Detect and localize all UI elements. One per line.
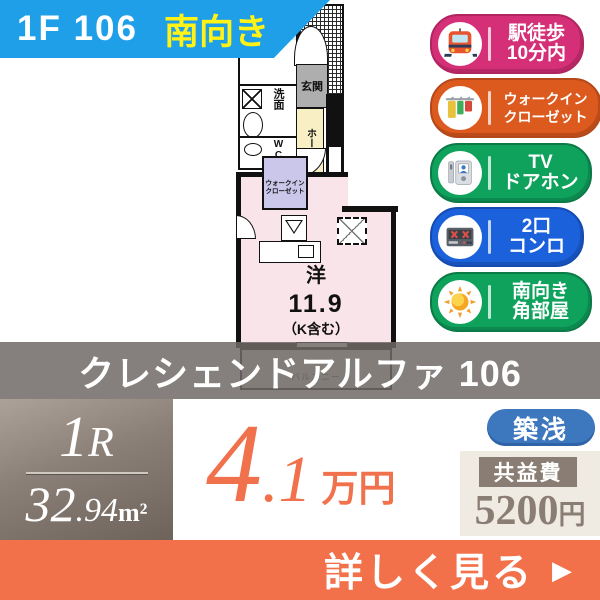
listing-card[interactable]: 浴室 洗面 WC 玄関 ホール 洋 11.9	[0, 0, 600, 600]
area-dec: .94	[76, 492, 119, 529]
room-type-label: 洋	[241, 263, 391, 289]
room-note-label: （K含む）	[241, 319, 391, 339]
layout-value: 1R	[0, 403, 173, 470]
age-badge-label: 築浅	[513, 410, 569, 446]
badge-line1: 南向き	[497, 282, 584, 302]
badge-text: TV ドアホン	[491, 153, 590, 193]
washer-space-icon	[242, 89, 262, 109]
wall-divider	[240, 84, 296, 86]
stove-icon	[438, 215, 482, 259]
badge-line2: 角部屋	[497, 302, 584, 322]
fee-value: 5200円	[460, 487, 600, 535]
fee-amount: 5200	[475, 488, 559, 534]
toilet-icon	[244, 143, 262, 156]
layout-number: 1	[59, 404, 88, 469]
badge-walkin-closet: ウォークイン クローゼット	[430, 78, 600, 138]
badge-text: 南向き 角部屋	[491, 282, 590, 322]
badge-text: ウォークイン クローゼット	[491, 90, 600, 126]
floorplan: 浴室 洗面 WC 玄関 ホール 洋 11.9	[226, 0, 406, 398]
rent-price: 4.1万円	[206, 399, 396, 531]
fee-label: 共益費	[479, 457, 577, 487]
details-button[interactable]: 詳しく見る ▶	[0, 540, 600, 600]
train-icon	[438, 22, 482, 66]
badge-line1: 駅徒歩	[497, 24, 576, 44]
entrance-label: 玄関	[301, 78, 323, 94]
area-unit: m²	[118, 498, 147, 527]
badge-line2: クローゼット	[497, 108, 594, 126]
room-labels: 洋 11.9 （K含む）	[241, 263, 391, 339]
area-value: 32.94m²	[0, 476, 173, 545]
range-hood-icon	[281, 215, 307, 241]
property-title: クレシェンドアルファ 106	[78, 345, 522, 397]
equipment-space	[337, 217, 367, 245]
badge-station-walk: 駅徒歩 10分内	[430, 14, 584, 74]
price-int: 4	[206, 399, 262, 529]
sink-icon	[298, 245, 314, 258]
price-unit: 万円	[322, 458, 396, 512]
entrance-area: 玄関	[296, 64, 328, 108]
badge-line2: ドアホン	[497, 173, 584, 193]
wall-divider	[240, 136, 296, 138]
walk-in-closet-area: ウォークイン クローゼット	[262, 156, 308, 210]
sun-icon	[438, 280, 482, 324]
basin-icon	[243, 112, 263, 138]
header-ribbon: 1F 106 南向き	[0, 0, 330, 58]
closet-label-line2: クローゼット	[264, 188, 306, 196]
room-top-wall	[342, 206, 398, 212]
divider-line	[26, 472, 148, 474]
fee-label-text: 共益費	[494, 457, 563, 487]
closet-label-line1: ウォークイン	[264, 180, 306, 188]
badge-two-burner-stove: 2口 コンロ	[430, 207, 584, 267]
room-size-label: 11.9	[241, 289, 391, 319]
layout-letter: R	[88, 420, 114, 466]
details-button-label: 詳しく見る	[324, 542, 534, 598]
summary-section: 1R 32.94m² 4.1万円 築浅 共益費 5200円	[0, 399, 600, 540]
badge-south-corner: 南向き 角部屋	[430, 272, 592, 332]
badge-line1: 2口	[497, 217, 576, 237]
price-dec: .1	[262, 442, 312, 518]
direction-label: 南向き	[164, 4, 269, 55]
kitchen-counter	[259, 241, 321, 263]
badge-line1: TV	[497, 153, 584, 173]
fee-unit: 円	[559, 500, 586, 530]
badge-tv-doorphone: TV ドアホン	[430, 143, 592, 203]
building-age-badge: 築浅	[487, 409, 595, 446]
room-door-arc	[236, 215, 256, 239]
layout-area-box: 1R 32.94m²	[0, 399, 173, 540]
badge-text: 駅徒歩 10分内	[491, 24, 582, 64]
floor-unit-label: 1F 106	[17, 9, 138, 49]
doorphone-icon	[438, 151, 482, 195]
badge-line1: ウォークイン	[497, 90, 594, 108]
property-title-band: クレシェンドアルファ 106	[0, 342, 600, 399]
badge-line2: 10分内	[497, 44, 576, 64]
exterior-area	[348, 166, 400, 208]
area-int: 32	[26, 476, 76, 532]
badge-text: 2口 コンロ	[491, 217, 582, 257]
badge-line2: コンロ	[497, 237, 576, 257]
washroom-label: 洗面	[270, 88, 286, 110]
fee-panel: 共益費 5200円	[460, 451, 600, 536]
closet-icon	[438, 86, 482, 130]
arrow-right-icon: ▶	[552, 555, 572, 586]
